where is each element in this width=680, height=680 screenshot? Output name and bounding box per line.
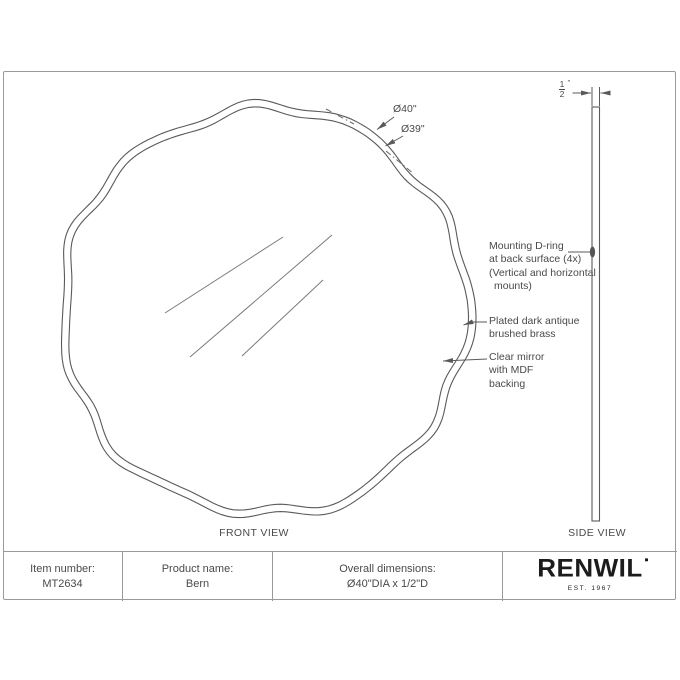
item-number-cell: Item number: MT2634 — [3, 552, 122, 601]
thickness-numerator: 1 — [560, 79, 565, 89]
annotation-brass-finish: Plated dark antique brushed brass — [489, 315, 579, 342]
brand-cell: RENWIL EST. 1967 — [502, 552, 677, 601]
mirror-outer-edge — [62, 99, 477, 517]
annotation-mirror-backing: Clear mirror with MDF backing — [489, 351, 544, 391]
product-spec-sheet: Ø40" Ø39" 1" 2 Mounting D-ring at back s… — [0, 0, 680, 680]
item-number-value: MT2634 — [42, 577, 82, 592]
overall-dimensions-label: Overall dimensions: — [339, 562, 436, 577]
front-view-label: FRONT VIEW — [194, 527, 314, 539]
annotation-mounting-dring: Mounting D-ring at back surface (4x) (Ve… — [489, 240, 596, 293]
overall-dimensions-value: Ø40"DIA x 1/2"D — [347, 577, 428, 592]
overall-dimensions-cell: Overall dimensions: Ø40"DIA x 1/2"D — [272, 552, 502, 601]
thickness-unit: " — [568, 79, 571, 88]
title-block: Item number: MT2634 Product name: Bern O… — [3, 551, 677, 601]
product-name-value: Bern — [186, 577, 209, 592]
side-view-panel — [592, 107, 600, 521]
brand-established: EST. 1967 — [568, 582, 612, 597]
side-view-label: SIDE VIEW — [537, 527, 657, 539]
dim-leader-inner — [386, 136, 404, 146]
product-name-label: Product name: — [162, 562, 234, 577]
thickness-denominator: 2 — [556, 90, 568, 99]
thickness-dimension: 1" 2 — [556, 80, 568, 99]
item-number-label: Item number: — [30, 562, 95, 577]
inner-diameter-label: Ø39" — [401, 123, 425, 136]
product-name-cell: Product name: Bern — [122, 552, 272, 601]
dim-leader-outer — [377, 117, 394, 130]
trademark-dot-icon — [645, 559, 648, 562]
brand-logo: RENWIL — [537, 557, 643, 580]
outer-diameter-label: Ø40" — [393, 103, 417, 116]
